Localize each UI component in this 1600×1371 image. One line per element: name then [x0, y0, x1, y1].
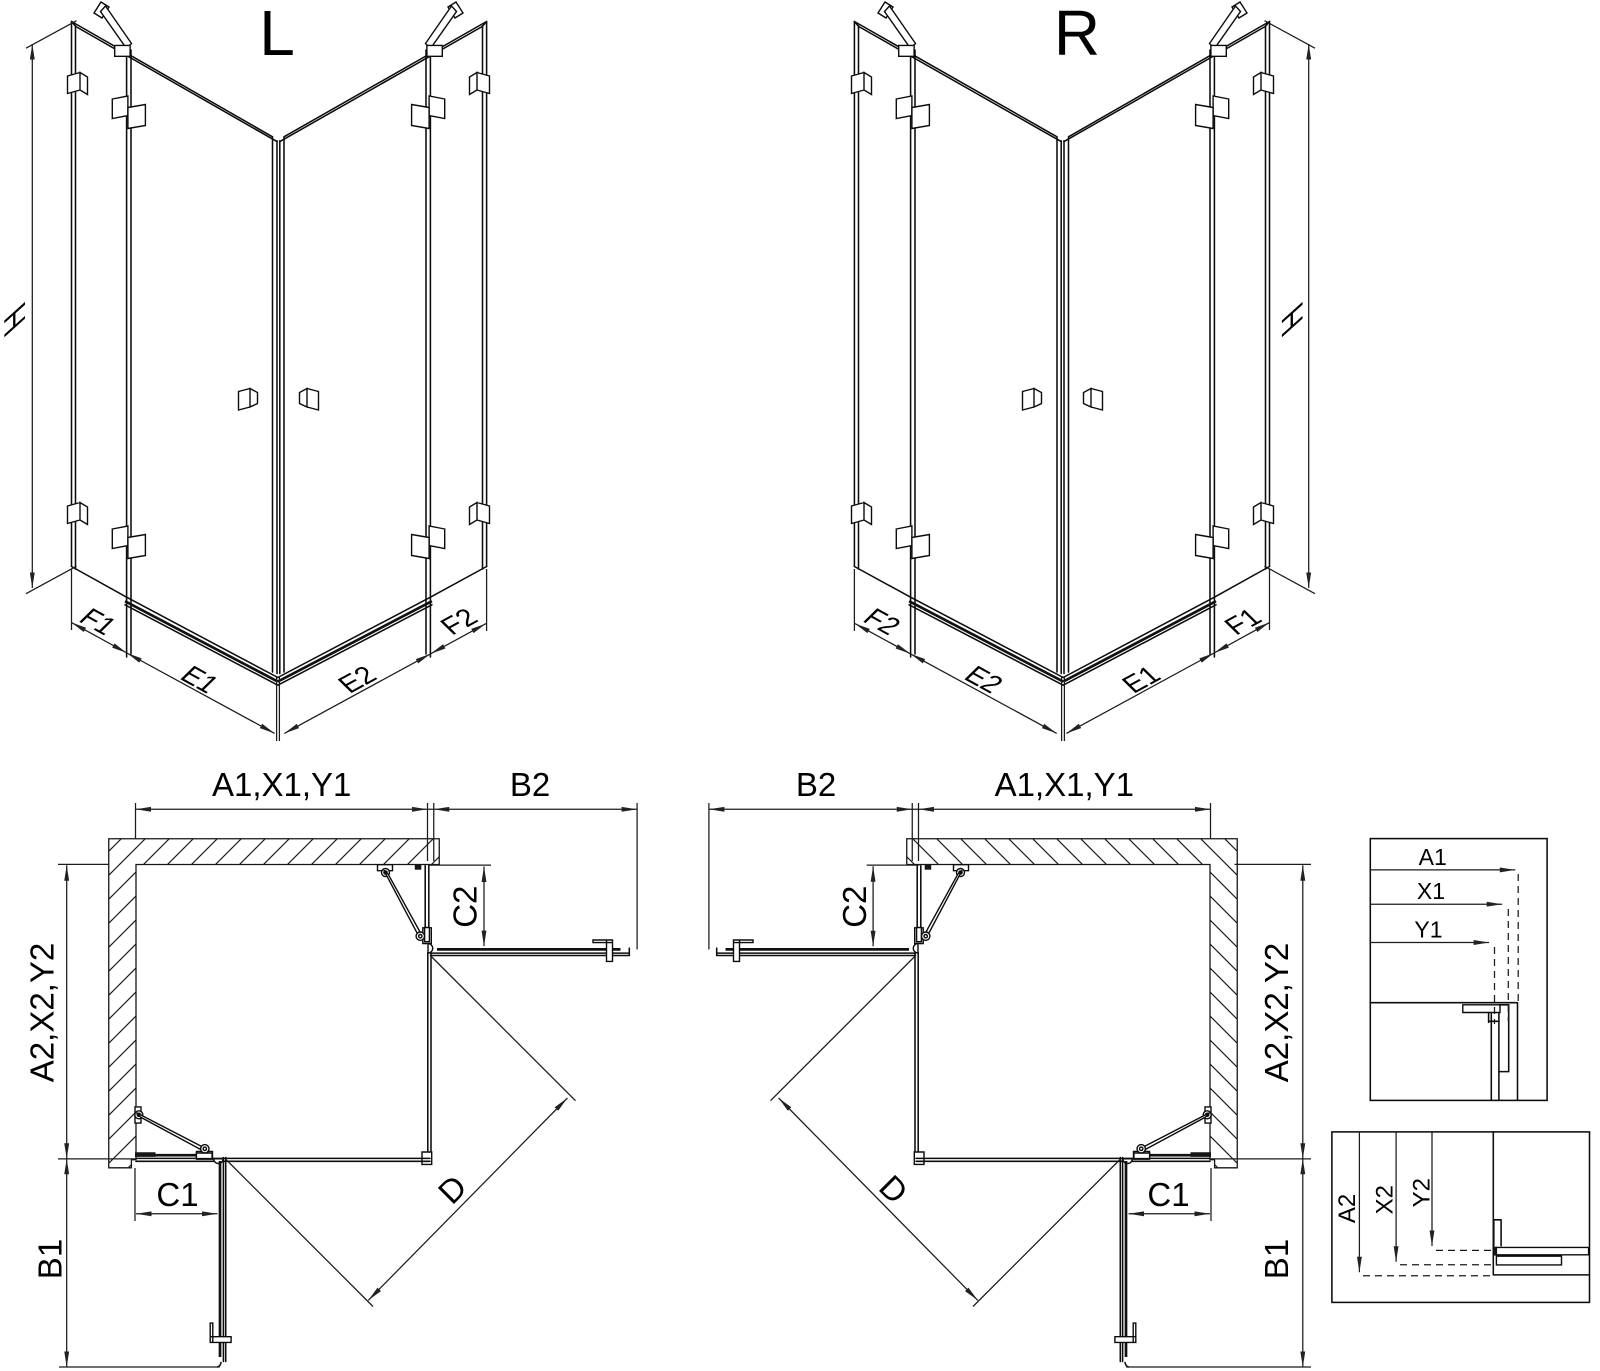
- svg-text:A2,X2,Y2: A2,X2,Y2: [1258, 943, 1295, 1082]
- svg-text:A1,X1,Y1: A1,X1,Y1: [995, 766, 1134, 803]
- svg-text:A2: A2: [1334, 1194, 1361, 1223]
- svg-text:B2: B2: [510, 766, 550, 803]
- svg-text:A1,X1,Y1: A1,X1,Y1: [212, 766, 351, 803]
- svg-text:B1: B1: [31, 1239, 68, 1279]
- svg-text:C2: C2: [447, 886, 484, 928]
- svg-text:C2: C2: [836, 886, 873, 928]
- svg-text:Y1: Y1: [1414, 917, 1442, 943]
- svg-text:X2: X2: [1372, 1185, 1399, 1214]
- svg-text:Y2: Y2: [1408, 1178, 1435, 1207]
- svg-text:C1: C1: [1147, 1176, 1189, 1213]
- svg-text:X1: X1: [1417, 878, 1445, 904]
- svg-text:B2: B2: [796, 766, 836, 803]
- svg-text:B1: B1: [1258, 1239, 1295, 1279]
- svg-text:R: R: [1054, 0, 1100, 69]
- svg-text:L: L: [259, 0, 295, 69]
- svg-text:A1: A1: [1419, 844, 1447, 870]
- svg-text:C1: C1: [156, 1176, 198, 1213]
- svg-text:A2,X2,Y2: A2,X2,Y2: [24, 943, 61, 1082]
